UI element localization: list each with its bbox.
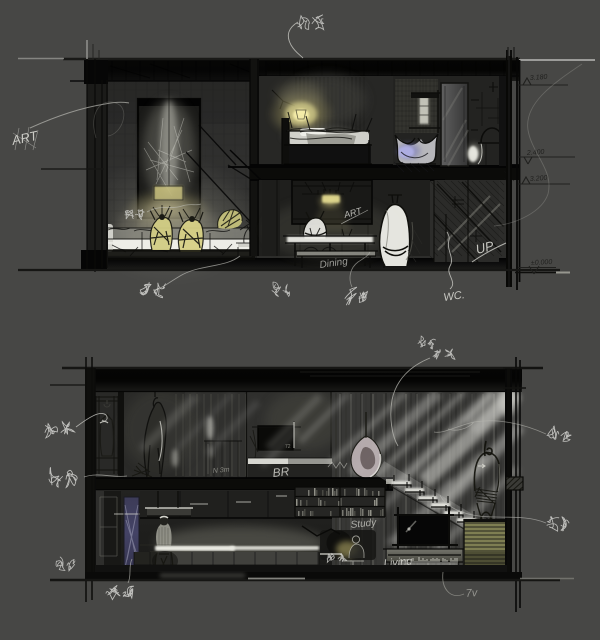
svg-text:3.180: 3.180 bbox=[530, 74, 548, 82]
svg-text:3.200: 3.200 bbox=[530, 175, 548, 183]
svg-text:±0.000: ±0.000 bbox=[531, 259, 553, 267]
svg-text:N 3m: N 3m bbox=[213, 467, 230, 475]
